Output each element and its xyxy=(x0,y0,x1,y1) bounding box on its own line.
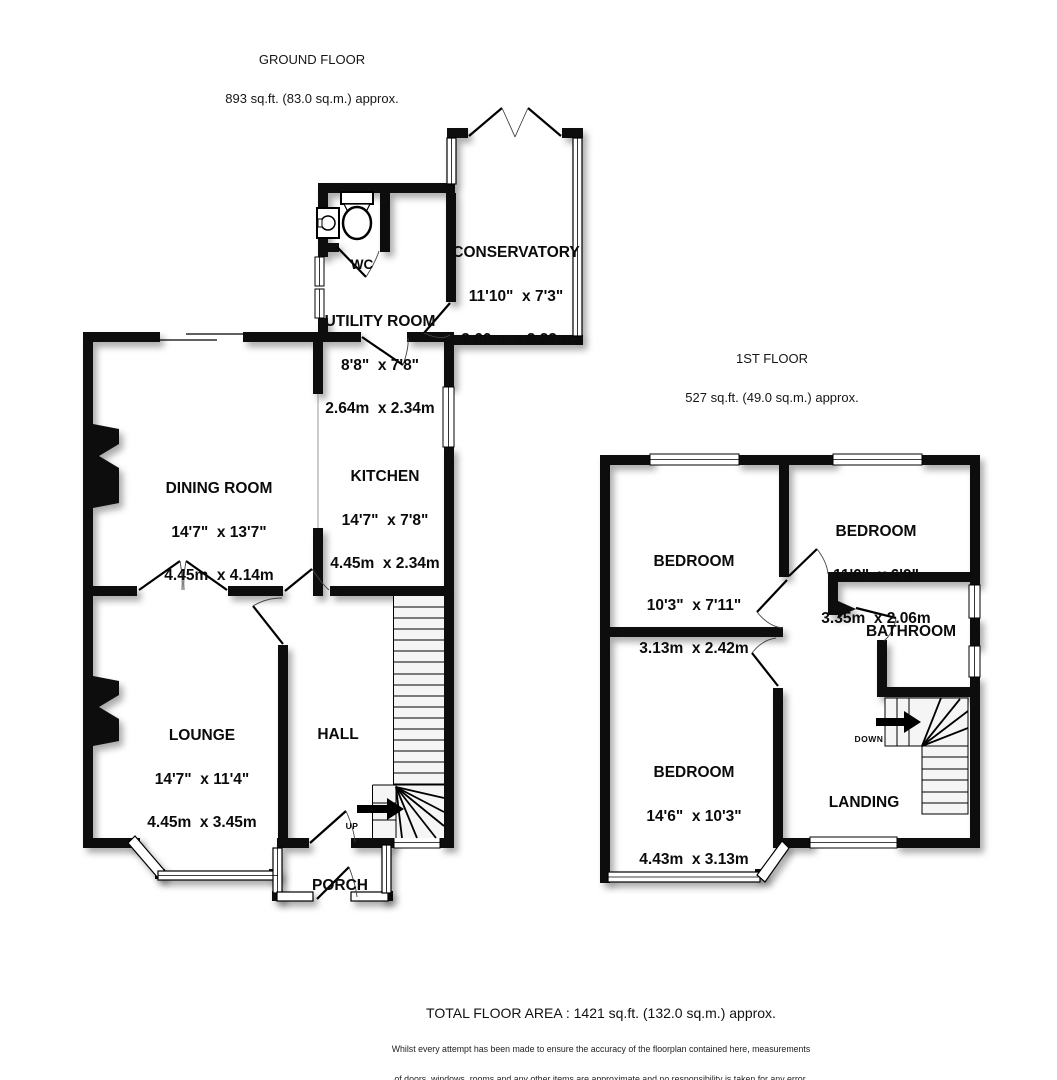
room-label-wc: WC xyxy=(351,229,374,287)
room-label-conservatory: CONSERVATORY 11'10" x 7'3" 3.60m x 2.22m xyxy=(452,217,579,362)
basin-icon xyxy=(317,208,339,238)
ground-floor-name: GROUND FLOOR xyxy=(225,53,398,66)
room-label-bedroom3: BEDROOM 14'6" x 10'3" 4.43m x 3.13m xyxy=(639,737,748,882)
disclaimer-text: Whilst every attempt has been made to en… xyxy=(389,1023,812,1080)
room-label-kitchen: KITCHEN 14'7" x 7'8" 4.45m x 2.34m xyxy=(330,441,439,586)
total-floor-area: TOTAL FLOOR AREA : 1421 sq.ft. (132.0 sq… xyxy=(426,1006,776,1020)
first-floor-title: 1ST FLOOR 527 sq.ft. (49.0 sq.m.) approx… xyxy=(685,326,858,417)
room-label-utility: UTILITY ROOM 8'8" x 7'8" 2.64m x 2.34m xyxy=(325,286,436,431)
stairs-up xyxy=(357,596,444,838)
first-floor-area: 527 sq.ft. (49.0 sq.m.) approx. xyxy=(685,391,858,404)
stairs-down-label: DOWN xyxy=(855,717,884,753)
floorplan-page: GROUND FLOOR 893 sq.ft. (83.0 sq.m.) app… xyxy=(0,0,1057,1080)
room-label-landing: LANDING xyxy=(829,767,900,825)
first-floor-name: 1ST FLOOR xyxy=(685,352,858,365)
ground-floor-title: GROUND FLOOR 893 sq.ft. (83.0 sq.m.) app… xyxy=(225,27,398,118)
stairs-up-label: UP xyxy=(346,804,359,840)
room-label-dining-room: DINING ROOM 14'7" x 13'7" 4.45m x 4.14m xyxy=(164,453,273,598)
room-label-bathroom: BATHROOM xyxy=(866,596,956,654)
room-label-bedroom1: BEDROOM 10'3" x 7'11" 3.13m x 2.42m xyxy=(639,526,748,671)
room-label-porch: PORCH xyxy=(312,850,368,908)
ground-floor-area: 893 sq.ft. (83.0 sq.m.) approx. xyxy=(225,92,398,105)
room-label-hall: HALL xyxy=(317,699,358,757)
room-label-lounge: LOUNGE 14'7" x 11'4" 4.45m x 3.45m xyxy=(147,700,256,845)
